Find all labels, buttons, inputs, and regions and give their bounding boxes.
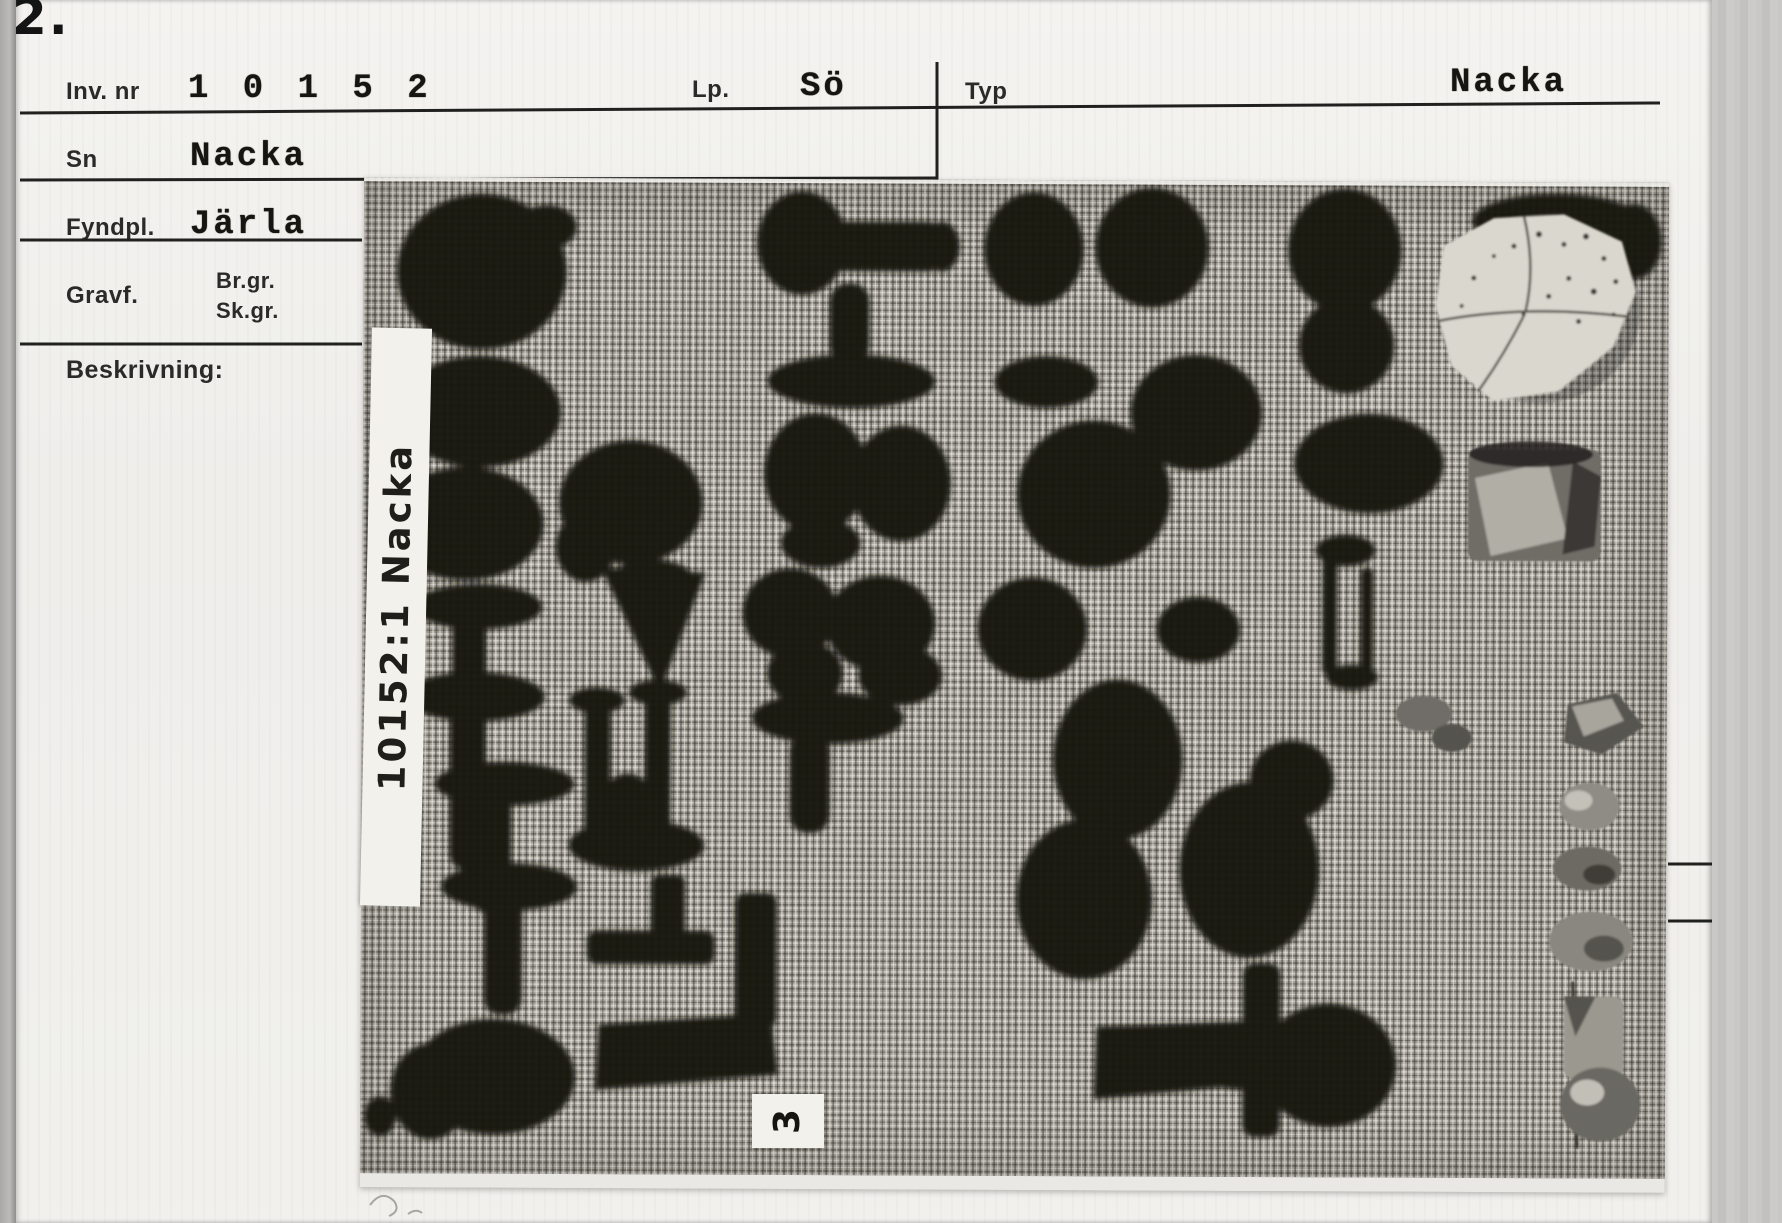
lp-value: Sö: [800, 68, 847, 106]
stone-fragment: [1468, 441, 1602, 562]
gravf-option-brgr: Br.gr.: [216, 268, 275, 294]
gravf-label: Gravf.: [66, 282, 138, 310]
fyndpl-label: Fyndpl.: [66, 214, 155, 242]
typ-label: Typ: [965, 78, 1007, 106]
photo-side-label: 10152:1 Nacka: [360, 327, 432, 906]
photo-side-label-text: 10152:1 Nacka: [368, 328, 424, 907]
scanner-bed-right: [1712, 0, 1782, 1223]
scanner-bed-left: [0, 0, 16, 1223]
inv-nr-label: Inv. nr: [66, 78, 140, 106]
page-corner-mark: 2.: [12, 0, 70, 46]
gravf-option-skgr: Sk.gr.: [216, 298, 279, 324]
artifact-photo: [360, 177, 1669, 1193]
sn-label: Sn: [66, 146, 98, 174]
photo-number-label: 3: [752, 1094, 824, 1148]
lp-label: Lp.: [692, 76, 730, 104]
fyndpl-value: Järla: [190, 206, 307, 244]
sn-value: Nacka: [190, 138, 307, 176]
typ-value: Nacka: [1450, 64, 1567, 102]
flake-column: [1394, 692, 1644, 1149]
beskrivning-label: Beskrivning:: [66, 356, 223, 385]
artifact-shapes: [360, 181, 1669, 1179]
photo-number-label-text: 3: [768, 1108, 809, 1133]
flint-fragment: [1435, 213, 1641, 404]
inv-nr-value: 1 0 1 5 2: [188, 70, 435, 108]
